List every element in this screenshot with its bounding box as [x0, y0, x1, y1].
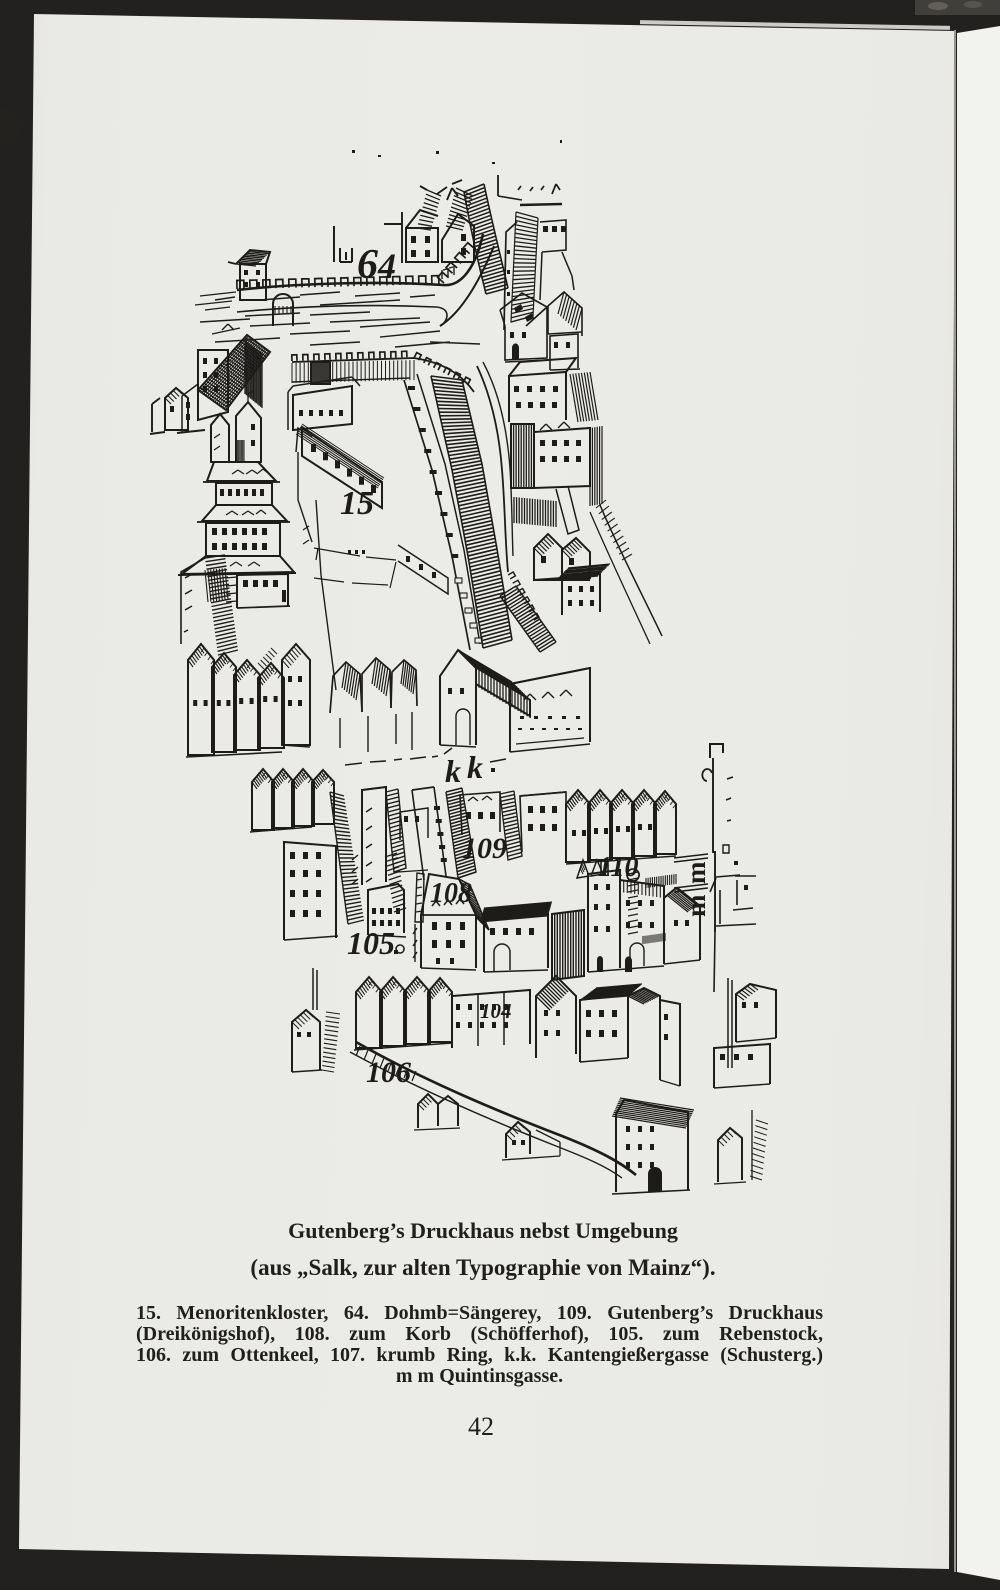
svg-text:110: 110	[598, 852, 638, 883]
svg-text:105: 105	[347, 925, 395, 961]
svg-text:m: m	[681, 861, 711, 884]
svg-text:104: 104	[480, 999, 512, 1023]
svg-text:109: 109	[462, 832, 507, 865]
svg-text:m: m	[681, 894, 711, 917]
svg-text:15: 15	[340, 485, 374, 522]
svg-text:k: k	[467, 749, 483, 785]
svg-text:k: k	[445, 753, 461, 789]
svg-text:108: 108	[430, 878, 472, 909]
